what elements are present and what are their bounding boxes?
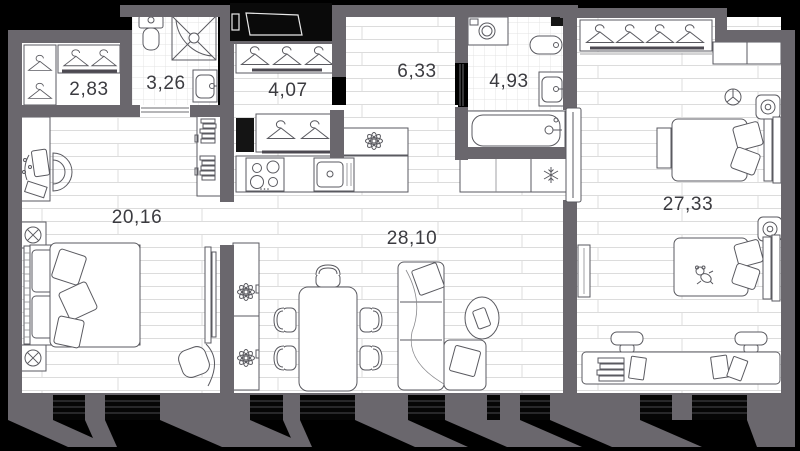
bathtub-icon (467, 111, 565, 150)
room-area-label-corridor: 6,33 (397, 61, 436, 82)
lamp-icon (20, 345, 46, 371)
room-area-label-hallway: 4,07 (268, 80, 307, 101)
washing-machine-icon (468, 17, 508, 45)
chair-icon (360, 308, 382, 332)
lamp-icon (20, 222, 46, 248)
tv-panel-icon (205, 247, 216, 343)
room-area-label-bedroom-2: 27,33 (663, 194, 714, 215)
bookshelf-icon (195, 114, 221, 196)
chair-icon (274, 308, 296, 332)
niche (236, 118, 254, 152)
sliding-door-leaf (566, 108, 581, 202)
rug-icon (465, 297, 499, 339)
radiator-icon (578, 245, 590, 297)
chair-icon (274, 346, 296, 370)
sink-icon (193, 70, 217, 102)
floor-plan-canvas: 2,83 3,26 4,07 6,33 4,93 20,16 28,10 27,… (0, 0, 800, 451)
toilet-icon (530, 36, 562, 54)
outlet-icon (756, 95, 780, 119)
room-area-label-wardrobe: 2,83 (69, 79, 108, 100)
bed-icon (24, 243, 140, 348)
desk-icon (18, 117, 50, 201)
room-area-label-living-kitchen: 28,10 (387, 228, 438, 249)
room-area-label-shower-room: 3,26 (146, 73, 185, 94)
chair-icon (360, 346, 382, 370)
chair-icon (316, 265, 340, 287)
sink-icon (539, 72, 565, 106)
wall-shadows (8, 420, 795, 447)
cabinet-icon (233, 243, 259, 390)
console-icon (713, 42, 781, 64)
room-area-label-bedroom-1: 20,16 (112, 207, 163, 228)
pillow-icon (53, 316, 84, 349)
toilet-icon (139, 16, 163, 28)
bed-icon (674, 235, 780, 301)
room-area-label-bathroom: 4,93 (489, 71, 528, 92)
vent-shaft-icon (230, 3, 332, 41)
floor-plan-svg: 2,83 3,26 4,07 6,33 4,93 20,16 28,10 27,… (0, 0, 800, 451)
door-leaf (460, 64, 463, 106)
